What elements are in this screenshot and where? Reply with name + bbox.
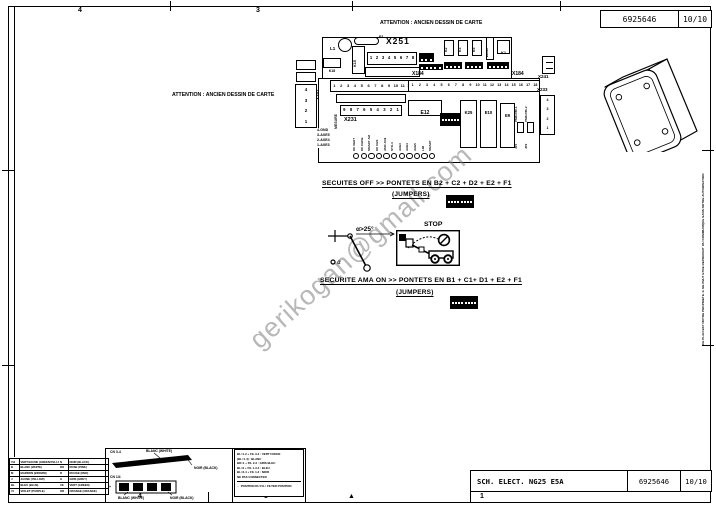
label-k15: K15 xyxy=(353,60,357,67)
led-label: STD-4 xyxy=(390,142,394,151)
stop-machine-pictogram xyxy=(396,230,460,266)
legend-cell: VE xyxy=(59,483,68,488)
component-k18: K18 xyxy=(323,58,341,68)
component-e12: E12 xyxy=(408,100,442,116)
pin-label: 6 xyxy=(445,84,452,88)
relay-k15: K15 xyxy=(352,46,365,74)
cn2-plus-label: + xyxy=(109,485,111,489)
led-circle-icon xyxy=(429,153,435,159)
pin-label: 17 xyxy=(525,84,532,88)
cn1-white-label: BLANC (WHITE) xyxy=(146,449,172,453)
led-label: SMART xyxy=(428,140,432,151)
doc-page-bottom: 10/10 xyxy=(681,477,711,486)
connector-x241 xyxy=(542,56,555,74)
security-on-jumpers: (JUMPERS) xyxy=(396,289,434,296)
pin-label: 12 xyxy=(488,84,495,88)
connector-x252-body xyxy=(336,94,406,103)
legend-cell: BL xyxy=(10,483,19,488)
label-e10: E10 xyxy=(485,110,492,115)
detail-area-mid-line xyxy=(232,448,233,503)
label-x184-left: X184 xyxy=(412,71,424,77)
legend-cell: RO xyxy=(59,465,68,470)
pin-label: 1 xyxy=(409,84,416,88)
pin-label: 16 xyxy=(517,84,524,88)
label-x184-right: X184 xyxy=(512,71,524,77)
pin-label: 9 xyxy=(341,108,348,112)
schematic-page: 43 43▲1 6925646 10/10 CE PLAN EST NOTRE … xyxy=(0,0,716,509)
pin-label: 10 xyxy=(392,84,399,88)
led-circle-icon xyxy=(399,153,405,159)
led-circle-icon xyxy=(421,153,427,159)
frame-tick-left-1 xyxy=(2,170,14,171)
label-x241: X241 xyxy=(538,74,549,79)
pin-label: 10 xyxy=(474,84,481,88)
led-indicator: DC VERT xyxy=(352,120,360,160)
enclosure-3d-drawing xyxy=(598,40,704,152)
connector-left-pins: 4321 xyxy=(295,84,317,128)
label-k25: K25 xyxy=(465,110,473,115)
pin-label: 3 xyxy=(541,108,554,112)
pin-label: 2 xyxy=(338,84,345,88)
label-jp1: JP1 xyxy=(514,144,518,149)
led-indicator: SMART xyxy=(428,120,436,160)
doc-page-top: 10/10 xyxy=(679,15,711,24)
pin-label: 1 xyxy=(296,120,316,125)
led-indicator: DK CES xyxy=(375,120,383,160)
title-block-left-extension xyxy=(470,492,471,503)
legend-cell: R xyxy=(59,471,68,476)
jumper-strip-e xyxy=(440,113,460,126)
ownership-note-line1: CE PLAN EST NOTRE PROPRIETE. IL NE PEUT … xyxy=(701,247,705,345)
pin-label: 11 xyxy=(399,84,406,88)
pin-label: 2 xyxy=(296,109,316,114)
legend-cell: J xyxy=(10,477,19,482)
legend-cell: N xyxy=(59,459,68,464)
label-k18: K18 xyxy=(329,69,335,73)
label-x252: X252 xyxy=(315,89,320,100)
left-aux-box-1 xyxy=(296,60,316,70)
jumper-strip-upper xyxy=(419,64,443,70)
led-circle-icon xyxy=(368,153,374,159)
led-label: DC VERT xyxy=(352,138,356,151)
jumper-jp2 xyxy=(527,122,534,133)
pin-label: 4 xyxy=(296,88,316,93)
led-indicator: AXE3 xyxy=(398,120,406,160)
led-indicator: AXE4 xyxy=(405,120,413,160)
status-led-row: DC VERTDC CEDESMART AMDK CESAMC-K19STD-4… xyxy=(352,120,436,160)
pin-label: 8 xyxy=(348,108,355,112)
relay-k3: K3 xyxy=(458,40,468,56)
connector-x233-pins: 4321 xyxy=(540,95,555,135)
frame-tick-left-2 xyxy=(2,365,14,366)
component-e9: E9 xyxy=(500,103,515,148)
security-on-line: SECURITE AMA ON >> PONTETS EN B1 + C1+ D… xyxy=(320,277,522,284)
label-k3: K3 xyxy=(458,48,462,52)
jumper-strip-c xyxy=(465,62,483,69)
legend-cell: JAUNE (YELLOW) xyxy=(20,477,59,482)
pin-label: 6 xyxy=(361,108,368,112)
relay-k1: K1 xyxy=(497,40,510,54)
note-arrow-line: ← POSITION DU FIL / FILTER POSITION xyxy=(237,484,301,489)
pin-label: 8 xyxy=(379,84,386,88)
frame-tick-top-2 xyxy=(352,1,353,11)
pin-label: 3 xyxy=(345,84,352,88)
pin-label: 2 xyxy=(388,108,395,112)
security-off-line: SECUITES OFF >> PONTETS EN B2 + C2 + D2 … xyxy=(322,180,512,187)
led-circle-icon xyxy=(353,153,359,159)
legend-cell: ROSE (PINK) xyxy=(69,465,108,470)
pin-label: 15 xyxy=(510,84,517,88)
frame-tick-right-2 xyxy=(702,345,714,346)
legend-cell: VERT (GREEN) xyxy=(69,483,108,488)
attention-left: ATTENTION : ANCIEN DESSIN DE CARTE xyxy=(172,92,274,98)
label-e18-19: E18/19 xyxy=(485,48,489,57)
label-pm81786-2: PM81786-2 xyxy=(524,106,528,122)
jumper-strip-d xyxy=(487,62,509,69)
label-x233: X233 xyxy=(537,87,548,92)
legend-cell: G xyxy=(59,477,68,482)
pin-label: 4 xyxy=(374,108,381,112)
component-e10: E10 xyxy=(480,100,497,148)
label-l1: L1 xyxy=(330,46,335,51)
jumper-diagram-off xyxy=(446,195,474,208)
title-block: SCH. ELECT. NG25 E5A 6925646 10/10 xyxy=(470,470,712,492)
led-indicator: AXE5 xyxy=(413,120,421,160)
legend-cell: VI xyxy=(10,489,19,494)
led-indicator: AMC-K19 xyxy=(382,120,390,160)
pin-label: 8 xyxy=(410,56,416,60)
legend-cell: VERT/JAUNE (GREEN/YELLOW) xyxy=(20,459,59,464)
detail-area-right-line xyxy=(305,448,306,503)
cn2-black-label: NOIR (BLACK) xyxy=(170,496,194,500)
led-label: AXE4 xyxy=(405,143,409,151)
label-x251: X251 xyxy=(386,36,410,46)
pin-label: 1 xyxy=(394,108,401,112)
led-circle-icon xyxy=(406,153,412,159)
led-indicator: STD-4 xyxy=(390,120,398,160)
led-label: AXE5 xyxy=(413,143,417,151)
zone-label: 1 xyxy=(480,493,484,500)
doc-box-top: 6925646 10/10 xyxy=(600,10,712,28)
left-pin-list-item: 1-AXE3 xyxy=(317,143,330,148)
led-label: DC CEDE xyxy=(360,137,364,151)
led-label: SMART AM xyxy=(367,135,371,151)
legend-cell: ROUGE (RED) xyxy=(69,471,108,476)
led-l1 xyxy=(338,38,352,52)
label-e12: E12 xyxy=(421,110,430,116)
jumper-jp1 xyxy=(517,122,524,133)
pin-label: 5 xyxy=(358,84,365,88)
left-pin-list: 4-GND3-AXE52-AXE41-AXE3 xyxy=(317,128,330,148)
pin-label: 7 xyxy=(372,84,379,88)
doc-number-top: 6925646 xyxy=(601,15,678,24)
legend-cell: M xyxy=(10,471,19,476)
stop-label: STOP xyxy=(424,221,442,228)
security-off-jumpers: (JUMPERS) xyxy=(392,191,430,198)
led-circle-icon xyxy=(361,153,367,159)
drawing-title: SCH. ELECT. NG25 E5A xyxy=(471,477,627,486)
note-line: NE PAS CONNECTER xyxy=(237,475,301,480)
connector-x184-pins: 123456789101112131415161718 xyxy=(408,80,540,92)
frame-tick-top-1 xyxy=(170,1,171,11)
frame-inner-left-line xyxy=(14,6,15,457)
pin-label: 5 xyxy=(368,108,375,112)
legend-cell: V/J xyxy=(10,459,19,464)
lever-alpha-label: α xyxy=(337,259,341,266)
pin-label: 14 xyxy=(503,84,510,88)
label-e9: E9 xyxy=(505,113,510,118)
pin-label: 4 xyxy=(431,84,438,88)
led-label: LIM xyxy=(421,146,425,151)
led-label: AMC-K19 xyxy=(383,138,387,151)
ownership-note-line2: OU COMMUNIQUE SANS NOTRE AUTORISATION xyxy=(701,174,705,246)
detail-area-left-line xyxy=(105,448,106,503)
pin-label: 8 xyxy=(460,84,467,88)
fuse-f1 xyxy=(354,37,379,45)
legend-cell: OR xyxy=(59,489,68,494)
zone-label: 3 xyxy=(256,7,260,14)
pin-label: 1 xyxy=(541,127,554,131)
tilt-lever-diagram: α>25° + α xyxy=(326,222,404,272)
pin-label: 11 xyxy=(481,84,488,88)
relay-k2: K2 xyxy=(444,40,454,56)
pin-label: 6 xyxy=(365,84,372,88)
cn1-black-label: NOIR (BLACK) xyxy=(194,466,218,470)
label-f1: F1 xyxy=(379,34,384,39)
legend-cell: NOIR (BLACK) xyxy=(69,459,108,464)
jumper-block-upper xyxy=(419,53,434,62)
left-aux-box-2 xyxy=(296,72,316,82)
led-circle-icon xyxy=(376,153,382,159)
pin-label: 9 xyxy=(467,84,474,88)
label-k2: K2 xyxy=(444,48,448,52)
doc-number-bottom: 6925646 xyxy=(628,477,680,486)
component-e18-19: E18/19 xyxy=(486,37,494,60)
lever-angle-label: α>25° xyxy=(356,225,374,233)
pin-label: 4 xyxy=(351,84,358,88)
ownership-note: CE PLAN EST NOTRE PROPRIETE. IL NE PEUT … xyxy=(701,95,705,345)
led-circle-icon xyxy=(414,153,420,159)
legend-cell: BLEU (BLUE) xyxy=(20,483,59,488)
pin-label: 3 xyxy=(423,84,430,88)
cn2-label: CN 1/4 xyxy=(110,475,121,479)
led-label: AXE3 xyxy=(398,143,402,151)
led-indicator: SMART AM xyxy=(367,120,375,160)
legend-cell: B xyxy=(10,465,19,470)
component-k25: K25 xyxy=(460,100,477,148)
pin-label: 7 xyxy=(452,84,459,88)
legend-cell: ORANGE (ORANGE) xyxy=(69,489,108,494)
connector-x251-pins: 12345678 xyxy=(367,52,417,65)
connector-x252-pins: 123456789101112 xyxy=(330,80,414,92)
frame-tick-top-3 xyxy=(560,1,561,11)
cn-wiring-detail: CN 3-4 BLANC (WHITE) NOIR (BLACK) CN 1/4… xyxy=(108,447,232,502)
pin-label: 4 xyxy=(541,99,554,103)
attention-top: ATTENTION : ANCIEN DESSIN DE CARTE xyxy=(380,20,482,26)
zone-label: ▲ xyxy=(348,493,355,500)
connector-x231-pins: 987654321 xyxy=(340,105,402,116)
led-circle-icon xyxy=(383,153,389,159)
relay-k5: K5 xyxy=(472,40,482,56)
led-label: DK CES xyxy=(375,140,379,151)
pin-label: 9 xyxy=(386,84,393,88)
jumper-strip-b xyxy=(444,62,462,69)
led-indicator: LIM xyxy=(420,120,428,160)
pin-label: 2 xyxy=(541,118,554,122)
pin-label: 3 xyxy=(296,99,316,104)
led-circle-icon xyxy=(391,153,397,159)
pin-label: 3 xyxy=(381,108,388,112)
zone-label: 4 xyxy=(78,7,82,14)
legend-cell: VIOLET (PURPLE) xyxy=(20,489,59,494)
legend-cell: BLANC (WHITE) xyxy=(20,465,59,470)
wiring-notes-block: BL=1-2 + FIL 3-4 : VERT FONCE(BL=1-4) : … xyxy=(234,449,304,497)
label-jp2: JP2 xyxy=(524,144,528,149)
label-k1: K1 xyxy=(501,50,506,55)
pin-label: 2 xyxy=(416,84,423,88)
pin-label: 5 xyxy=(438,84,445,88)
pin-label: 1 xyxy=(331,84,338,88)
label-mesure: MESURE xyxy=(334,114,338,129)
wire-color-legend-table: V/JVERT/JAUNE (GREEN/YELLOW)NNOIR (BLACK… xyxy=(9,458,109,495)
cn1-label: CN 3-4 xyxy=(110,450,121,454)
legend-cell: MARRON (BROWN) xyxy=(20,471,59,476)
pin-label: 13 xyxy=(496,84,503,88)
legend-cell: GRIS (GREY) xyxy=(69,477,108,482)
label-k5: K5 xyxy=(472,48,476,52)
jumper-diagram-on xyxy=(450,296,478,309)
label-pm81786-1: PM81786-1 xyxy=(514,106,518,122)
cn2-white-label: BLANC (WHITE) xyxy=(118,496,144,500)
pin-label: 7 xyxy=(354,108,361,112)
